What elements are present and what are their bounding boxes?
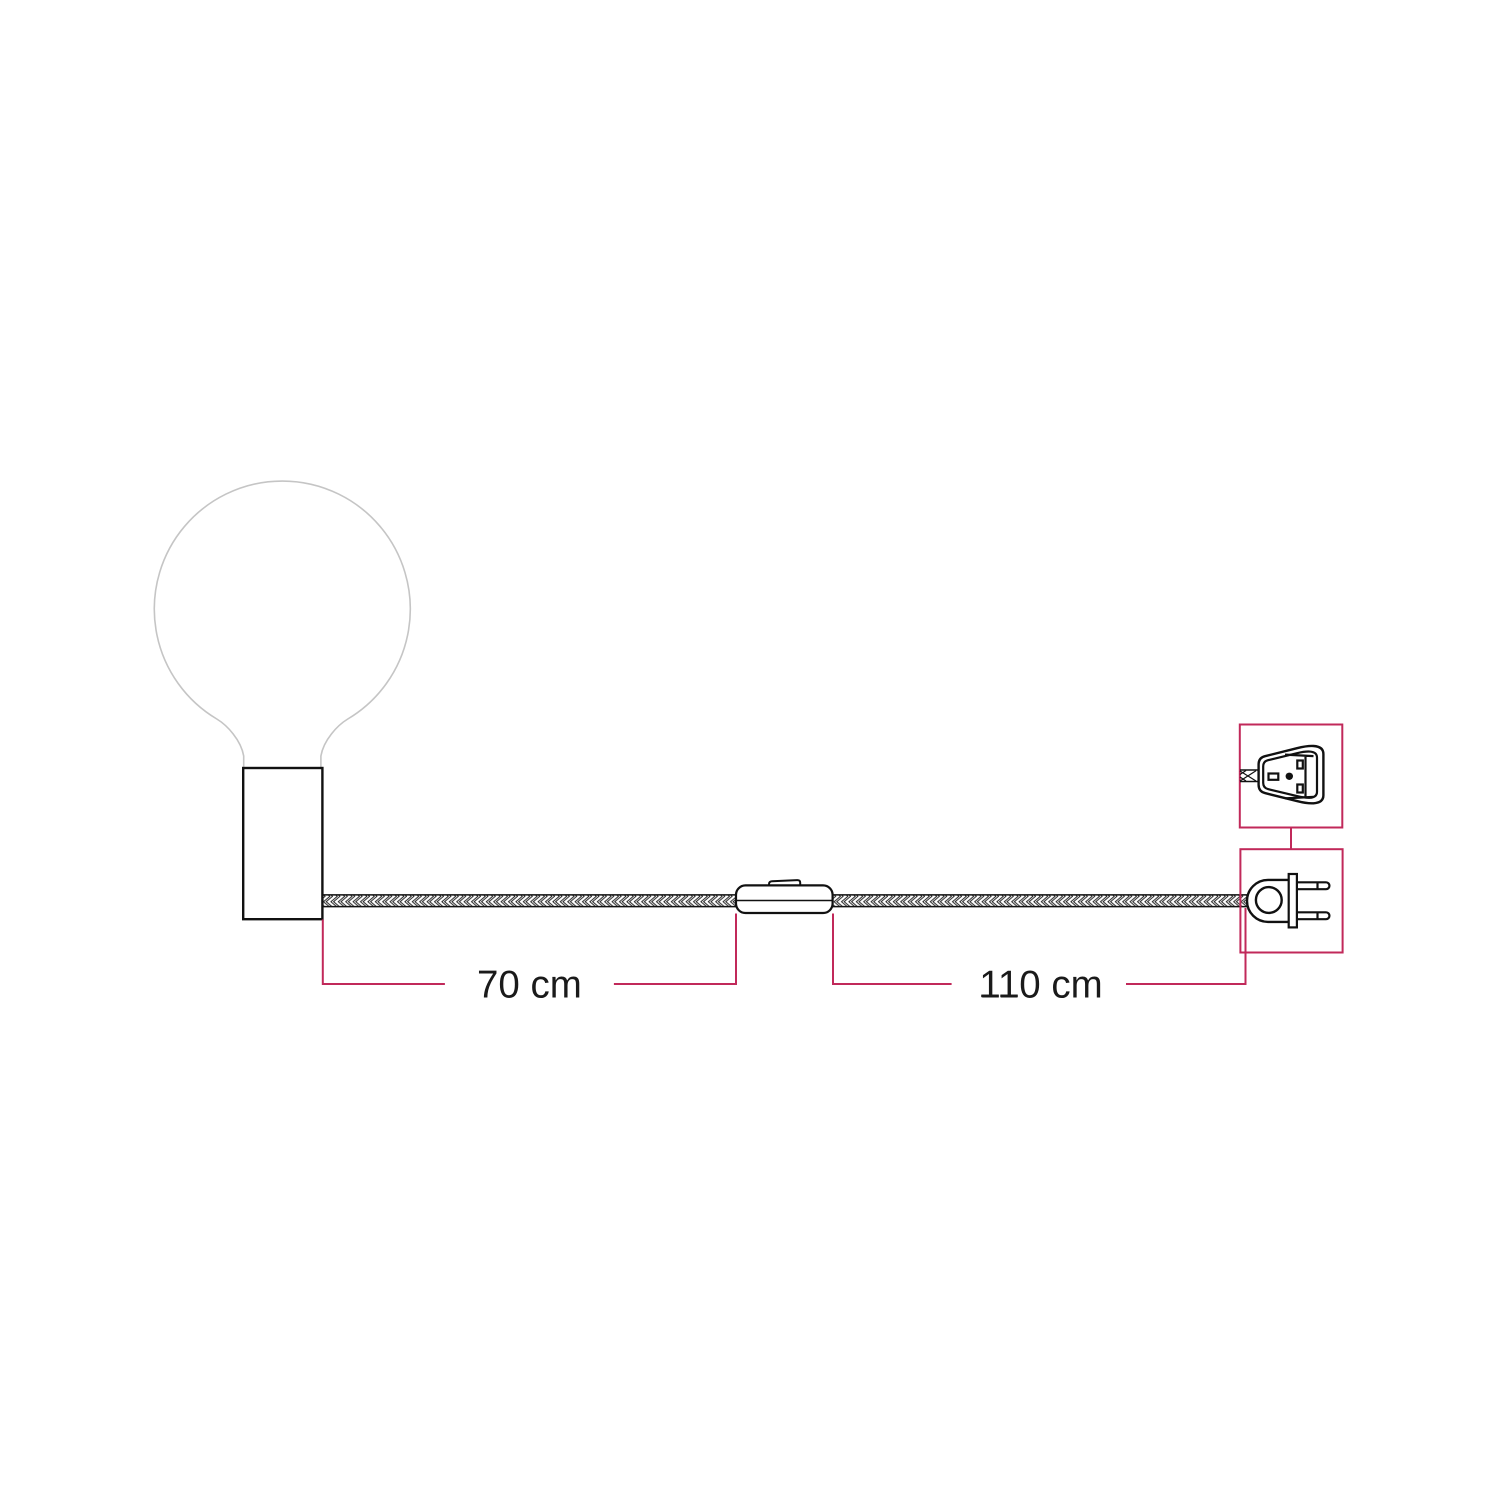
svg-text:110 cm: 110 cm xyxy=(979,963,1102,1006)
svg-text:70 cm: 70 cm xyxy=(477,963,582,1006)
